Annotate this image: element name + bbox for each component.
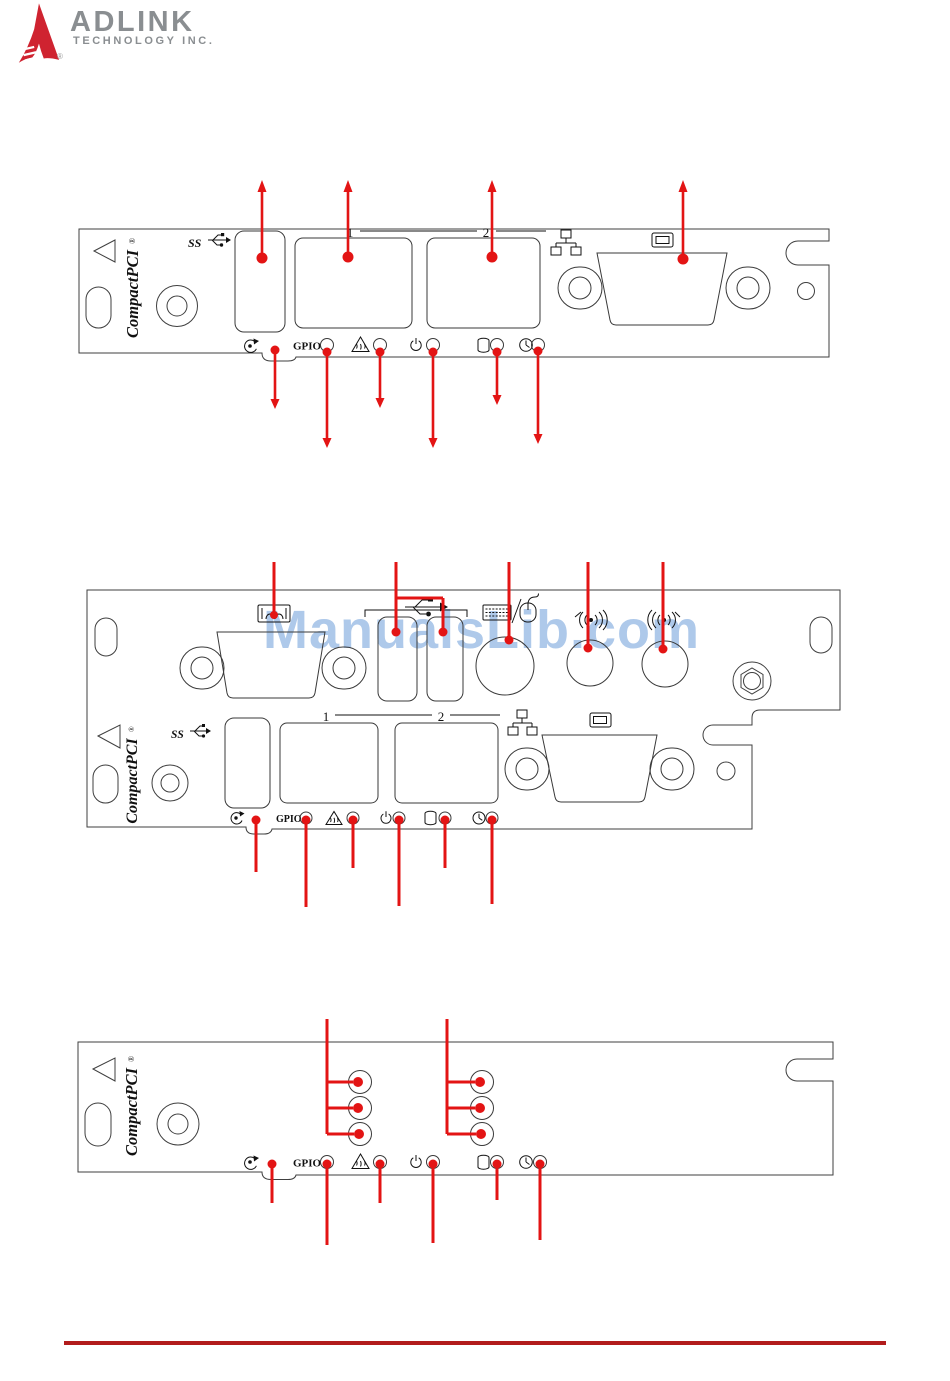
callout-hdd-led <box>493 348 502 406</box>
ss-usb-trident-icon: SS <box>171 724 211 741</box>
handle-cutout <box>93 765 118 803</box>
callout-antenna-port-2 <box>659 562 668 654</box>
callout-gpio-led <box>323 1160 332 1246</box>
usb3-port <box>235 231 285 332</box>
mounting-hole <box>717 762 735 780</box>
keyboard-mouse-icon <box>483 594 539 624</box>
adlink-logo-icon <box>15 2 61 66</box>
panel-screw <box>152 765 188 801</box>
display-monitor-icon <box>652 233 673 247</box>
lan-port-2 <box>427 238 540 328</box>
callout-power-led <box>429 348 438 449</box>
gpio-label: GPIO <box>276 814 302 825</box>
lan1-label: 1 <box>323 709 330 724</box>
usb-bracket <box>365 610 467 617</box>
diagram-faceplate-top: CompactPCI ® SS 1 2 <box>0 160 950 460</box>
alignment-triangle <box>94 240 115 262</box>
display-monitor-icon <box>590 713 611 727</box>
faceplate-outline <box>78 1042 833 1180</box>
lan-port-1 <box>295 238 412 328</box>
oval-cutout-left <box>95 618 117 656</box>
lan-port-2 <box>395 723 498 803</box>
mounting-hole <box>798 283 815 300</box>
callout-watchdog-led <box>534 347 543 445</box>
callout-lan-port-1 <box>343 180 354 263</box>
reset-circular-arrow-icon <box>245 339 259 353</box>
callout-power-led <box>429 1160 438 1244</box>
compactpci-logo-text: CompactPCI ® <box>122 1056 141 1156</box>
hdd-cylinder-icon <box>478 1155 489 1169</box>
reset-circular-arrow-icon <box>245 1156 259 1170</box>
callout-led-stack-2 <box>447 1019 486 1139</box>
handle-cutout <box>85 1103 111 1146</box>
alignment-triangle <box>93 1058 115 1081</box>
overheat-warning-triangle-icon <box>352 1154 369 1169</box>
handle-cutout <box>86 287 111 328</box>
svg-text:®: ® <box>127 1056 136 1062</box>
ethernet-network-icon <box>551 230 581 255</box>
power-icon <box>381 811 391 823</box>
clock-icon <box>520 339 533 352</box>
clock-icon <box>473 812 485 824</box>
lan-port-1 <box>280 723 378 803</box>
callout-reset-button <box>271 346 280 410</box>
callout-usb-ports <box>392 562 448 637</box>
gpio-label: GPIO <box>293 341 322 353</box>
lan2-label: 2 <box>483 225 490 240</box>
ethernet-network-icon <box>508 710 537 735</box>
callout-overheat-led <box>376 1160 385 1204</box>
logo-registered-mark: ® <box>57 52 63 61</box>
power-icon <box>411 1155 421 1167</box>
callout-vga-port <box>678 180 689 265</box>
panel-screw <box>157 286 198 327</box>
lan2-label: 2 <box>438 709 445 724</box>
hdd-cylinder-icon <box>478 338 489 352</box>
footer-rule <box>64 1341 886 1345</box>
power-icon <box>411 338 421 350</box>
callout-ps2-port <box>505 562 514 645</box>
hdd-cylinder-icon <box>425 811 436 824</box>
svg-text:CompactPCI: CompactPCI <box>124 738 141 824</box>
vga-port <box>558 253 770 325</box>
usb3-port <box>225 718 270 808</box>
alignment-triangle <box>98 725 120 748</box>
svg-text:CompactPCI: CompactPCI <box>122 1067 141 1156</box>
compactpci-logo-text: CompactPCI ® <box>123 238 142 338</box>
gpio-label: GPIO <box>293 1158 322 1170</box>
callout-lan-port-2 <box>487 180 498 263</box>
callout-gpio-led <box>323 348 332 449</box>
svg-text:®: ® <box>128 238 137 244</box>
svg-text:SS: SS <box>188 236 202 250</box>
compactpci-logo-text: CompactPCI ® <box>124 726 141 824</box>
overheat-warning-triangle-icon <box>326 812 342 825</box>
diagram-faceplate-bottom: CompactPCI ® GPIO <box>0 1010 950 1260</box>
callout-reset-button <box>252 816 261 873</box>
callout-watchdog-led <box>536 1160 545 1241</box>
diagram-faceplate-middle: CompactPCI ® SS 1 2 GPI <box>0 550 950 920</box>
vga-port <box>505 735 694 802</box>
reset-circular-arrow-icon <box>231 811 244 824</box>
callout-antenna-port-1 <box>584 562 593 653</box>
svg-text:SS: SS <box>171 729 184 741</box>
ss-usb-trident-icon: SS <box>188 233 231 250</box>
callout-usb3-port <box>257 180 268 264</box>
brand-subtitle: TECHNOLOGY INC. <box>73 35 214 47</box>
callout-hdd-led <box>493 1160 502 1201</box>
svg-text:CompactPCI: CompactPCI <box>123 249 142 338</box>
overheat-warning-triangle-icon <box>352 337 369 352</box>
antenna-signal-icon <box>575 610 607 630</box>
callout-led-stack-1 <box>327 1019 364 1139</box>
serial-port <box>180 632 366 698</box>
svg-text:®: ® <box>127 726 136 732</box>
panel-screw <box>157 1103 199 1145</box>
oval-cutout-right <box>810 617 832 653</box>
hex-nut-screw <box>733 662 771 700</box>
callout-reset-button <box>268 1160 277 1204</box>
clock-icon <box>520 1156 533 1169</box>
ps2-port <box>476 637 534 695</box>
